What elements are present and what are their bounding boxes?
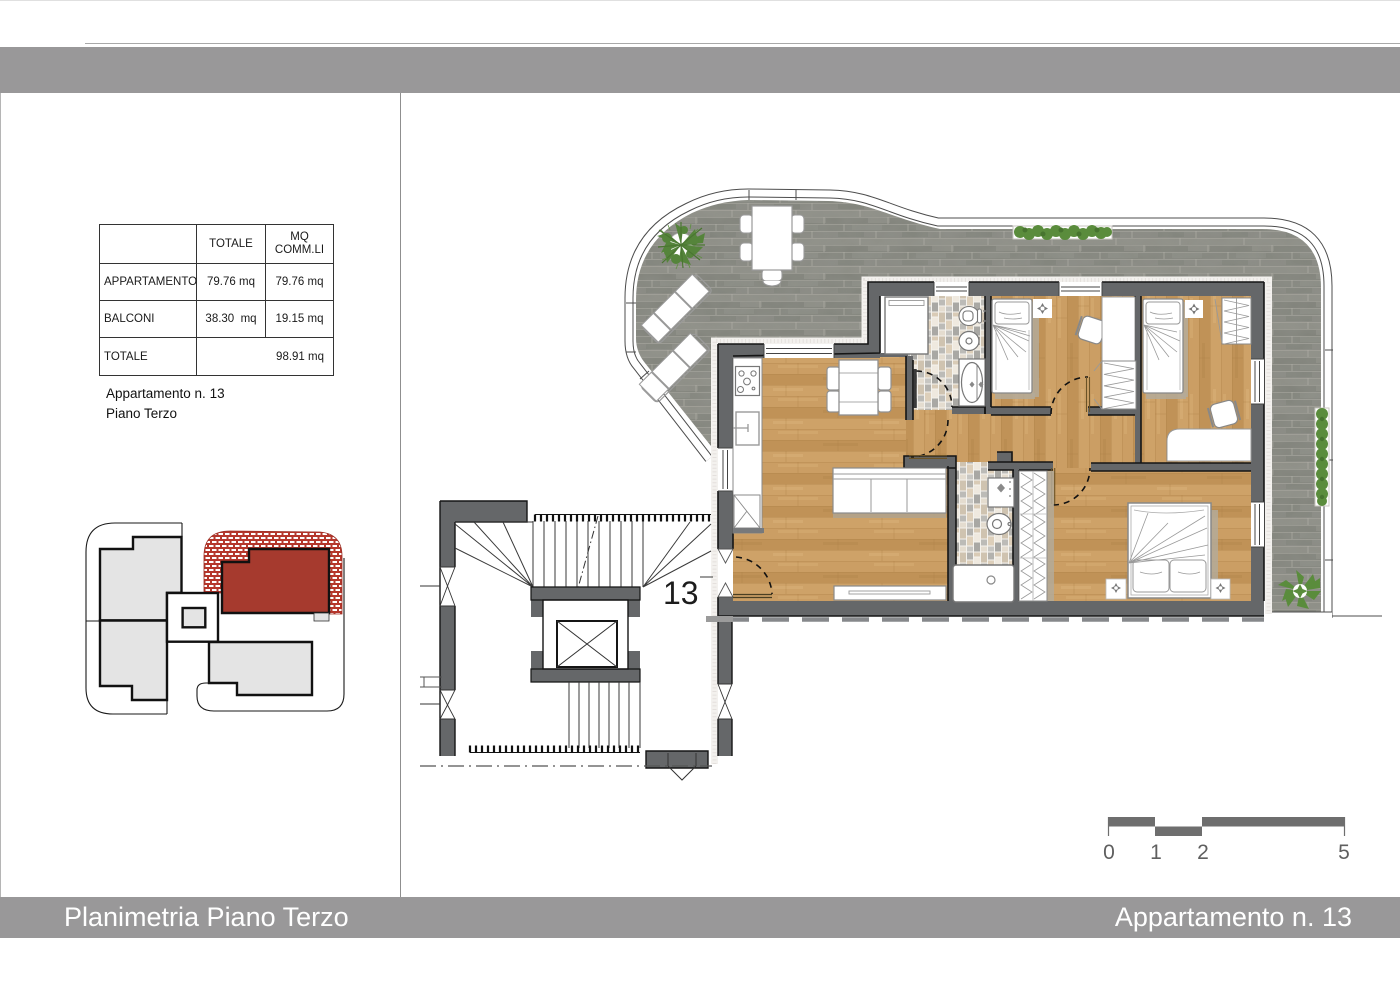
svg-text:2: 2 <box>1197 841 1209 864</box>
svg-text:5: 5 <box>1338 841 1350 864</box>
svg-text:0: 0 <box>1103 841 1115 864</box>
svg-text:1: 1 <box>1150 841 1162 864</box>
svg-text:13: 13 <box>663 575 699 611</box>
